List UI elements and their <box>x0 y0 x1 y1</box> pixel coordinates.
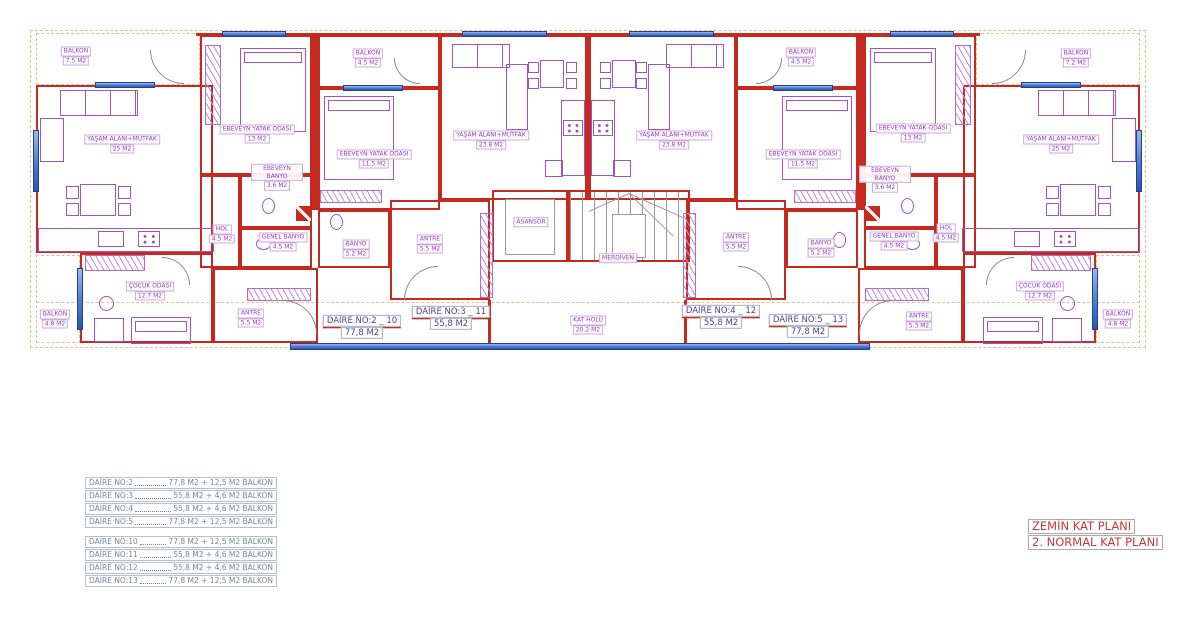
wardrobe-hatch <box>320 190 382 203</box>
window <box>343 85 403 91</box>
room-label: BALKON4.8 M2 <box>1103 310 1133 329</box>
room-label: ÇOCUK ODASI12.7 M2 <box>1016 282 1064 301</box>
room-label: ANTRE5.5 M2 <box>238 309 264 328</box>
legend-row: DAİRE NO:355,8 M2 + 4,6 M2 BALKON <box>85 490 277 502</box>
leader-dots <box>140 563 171 571</box>
chair <box>566 78 577 89</box>
chair <box>566 62 577 73</box>
room-label-stairs: MERDİVEN <box>599 253 637 263</box>
room-label: ANTRE5.5 M2 <box>417 235 443 254</box>
balcony-boundary <box>1096 255 1140 343</box>
wardrobe-hatch <box>865 288 929 301</box>
balcony-boundary <box>36 255 80 343</box>
room-label: YAŞAM ALANI+MUTFAK23.8 M2 <box>453 131 529 150</box>
single-bed <box>983 317 1043 344</box>
window <box>1021 82 1081 88</box>
room-label: EBEVEYN YATAK ODASI13 M2 <box>220 125 295 144</box>
leader-dots <box>135 491 171 499</box>
legend-row: DAİRE NO:455,8 M2 + 4,6 M2 BALKON <box>85 503 277 515</box>
wardrobe-hatch <box>1031 255 1091 271</box>
window <box>222 31 286 37</box>
kitchen-counter <box>591 100 615 176</box>
room-label: GENEL BANYO4.5 M2 <box>870 232 919 251</box>
wall <box>585 35 590 200</box>
window <box>33 130 39 192</box>
stove <box>563 120 583 136</box>
leader-dots <box>135 478 166 486</box>
room-label: EBEVEYN YATAK ODASI11.5 M2 <box>766 150 841 169</box>
drawing-title-line2: 2. NORMAL KAT PLANI <box>1028 535 1163 550</box>
chair <box>99 296 114 311</box>
window <box>95 82 155 88</box>
room-label: YAŞAM ALANI+MUTFAK25 M2 <box>84 135 160 154</box>
chair <box>118 186 131 199</box>
wardrobe-hatch <box>955 45 971 125</box>
legend-row: DAİRE NO:1155,8 M2 + 4,6 M2 BALKON <box>85 549 277 561</box>
legend-row: DAİRE NO:1077,8 M2 + 12,5 M2 BALKON <box>85 536 277 548</box>
armchair <box>40 118 64 162</box>
chair <box>528 78 539 89</box>
column <box>865 206 880 221</box>
room-label-elevator: ASANSÖR <box>513 217 548 227</box>
kitchen-counter <box>38 228 214 252</box>
elevator-car <box>505 199 555 255</box>
room-label: EBEVEYN YATAK ODASI13 M2 <box>876 124 951 143</box>
room-label: EBEVEYN BANYO3.6 M2 <box>859 166 911 193</box>
balcony-door-window <box>1092 268 1098 330</box>
cabinet <box>648 64 670 130</box>
toilet <box>833 232 846 248</box>
room-label: BALKON7.5 M2 <box>61 47 91 66</box>
window <box>1136 130 1142 192</box>
room-label: EBEVEYN YATAK ODASI11.5 M2 <box>337 150 412 169</box>
chair <box>66 203 79 216</box>
room-label: HOL4.5 M2 <box>209 225 235 244</box>
window <box>773 85 833 91</box>
chair <box>528 62 539 73</box>
desk <box>1052 318 1082 342</box>
unit-label: DAİRE NO:3 _ 1155,8 M2 <box>412 306 490 330</box>
sofa <box>666 44 724 68</box>
armchair <box>1112 118 1136 162</box>
chair <box>1098 186 1111 199</box>
room-label: BALKON4.5 M2 <box>786 48 816 67</box>
drawing-title: ZEMİN KAT PLANI 2. NORMAL KAT PLANI <box>1028 519 1163 551</box>
room-label: BALKON4.5 M2 <box>353 49 383 68</box>
chair <box>600 62 611 73</box>
leader-dots <box>140 550 171 558</box>
chair <box>1046 203 1059 216</box>
balcony-door-window <box>77 268 83 330</box>
window <box>462 31 547 37</box>
desk <box>94 318 124 342</box>
dining-table <box>540 60 564 88</box>
room-label: BANYO5.2 M2 <box>808 239 835 258</box>
area-legend: DAİRE NO:277,8 M2 + 12,5 M2 BALKON DAİRE… <box>85 477 277 588</box>
leader-dots <box>135 504 171 512</box>
stairs-landing <box>612 214 646 258</box>
room-label: EBEVEYN BANYO3.6 M2 <box>251 164 303 191</box>
double-bed <box>240 48 306 132</box>
dining-table <box>1060 184 1096 216</box>
kitchen-counter <box>561 100 585 176</box>
legend-row: DAİRE NO:1255,8 M2 + 4,6 M2 BALKON <box>85 562 277 574</box>
kitchen-sink <box>613 160 631 177</box>
dining-table <box>612 60 636 88</box>
chair <box>600 78 611 89</box>
double-bed <box>870 48 936 132</box>
wall <box>311 35 319 210</box>
room-label: BALKON4.8 M2 <box>40 310 70 329</box>
toilet <box>901 198 914 214</box>
floor-plan-sheet: BALKON7.5 M2 YAŞAM ALANI+MUTFAK25 M2 EBE… <box>0 0 1200 620</box>
legend-gap <box>85 529 277 536</box>
room-label: BANYO5.2 M2 <box>343 240 370 259</box>
room-label: YAŞAM ALANI+MUTFAK25 M2 <box>1023 135 1099 154</box>
window-band <box>290 343 870 350</box>
room-label: BALKON7.2 M2 <box>1061 49 1091 68</box>
chair <box>636 62 647 73</box>
room-label: ÇOCUK ODASI12.7 M2 <box>126 282 174 301</box>
room-label: HOL4.5 M2 <box>933 224 959 243</box>
wardrobe-hatch <box>794 190 856 203</box>
toilet <box>330 214 343 230</box>
legend-row: DAİRE NO:1377,8 M2 + 12,5 M2 BALKON <box>85 575 277 587</box>
kitchen-counter <box>962 228 1140 252</box>
chair <box>66 186 79 199</box>
legend-row: DAİRE NO:277,8 M2 + 12,5 M2 BALKON <box>85 477 277 489</box>
drawing-title-line1: ZEMİN KAT PLANI <box>1028 519 1135 534</box>
stove <box>138 231 160 247</box>
chair <box>118 203 131 216</box>
wardrobe-hatch <box>205 45 221 125</box>
stove <box>1054 231 1076 247</box>
room-label: ANTRE5.5 M2 <box>723 233 749 252</box>
kitchen-sink <box>545 160 563 177</box>
chair <box>1098 203 1111 216</box>
wardrobe-hatch <box>247 288 311 301</box>
column <box>296 206 311 221</box>
single-bed <box>131 317 191 344</box>
room-label: KAT HOLÜ20.2 M2 <box>570 316 606 335</box>
room-label: ANTRE5.3 M2 <box>906 312 932 331</box>
cabinet <box>506 64 528 130</box>
chair <box>636 78 647 89</box>
unit-label: DAİRE NO:5 _ 1377,8 M2 <box>769 314 847 338</box>
sofa <box>1038 90 1116 116</box>
kitchen-sink <box>1014 231 1040 247</box>
window <box>629 31 714 37</box>
unit-label: DAİRE NO:4 _ 1255,8 M2 <box>682 305 760 329</box>
window <box>890 31 954 37</box>
wardrobe-hatch <box>480 213 493 298</box>
room-label: YAŞAM ALANI+MUTFAK23.8 M2 <box>636 131 712 150</box>
chair <box>1046 186 1059 199</box>
dining-table <box>80 184 116 216</box>
wardrobe-hatch <box>85 255 145 271</box>
sofa <box>60 90 138 116</box>
room-label: GENEL BANYO4.5 M2 <box>259 233 308 252</box>
stove <box>593 120 613 136</box>
leader-dots <box>140 576 167 584</box>
toilet <box>262 198 275 214</box>
leader-dots <box>135 517 166 525</box>
kitchen-sink <box>98 231 124 247</box>
unit-label: DAİRE NO:2 _ 1077,8 M2 <box>323 315 401 339</box>
leader-dots <box>140 537 167 545</box>
legend-row: DAİRE NO:577,8 M2 + 12,5 M2 BALKON <box>85 516 277 528</box>
sofa <box>452 44 510 68</box>
